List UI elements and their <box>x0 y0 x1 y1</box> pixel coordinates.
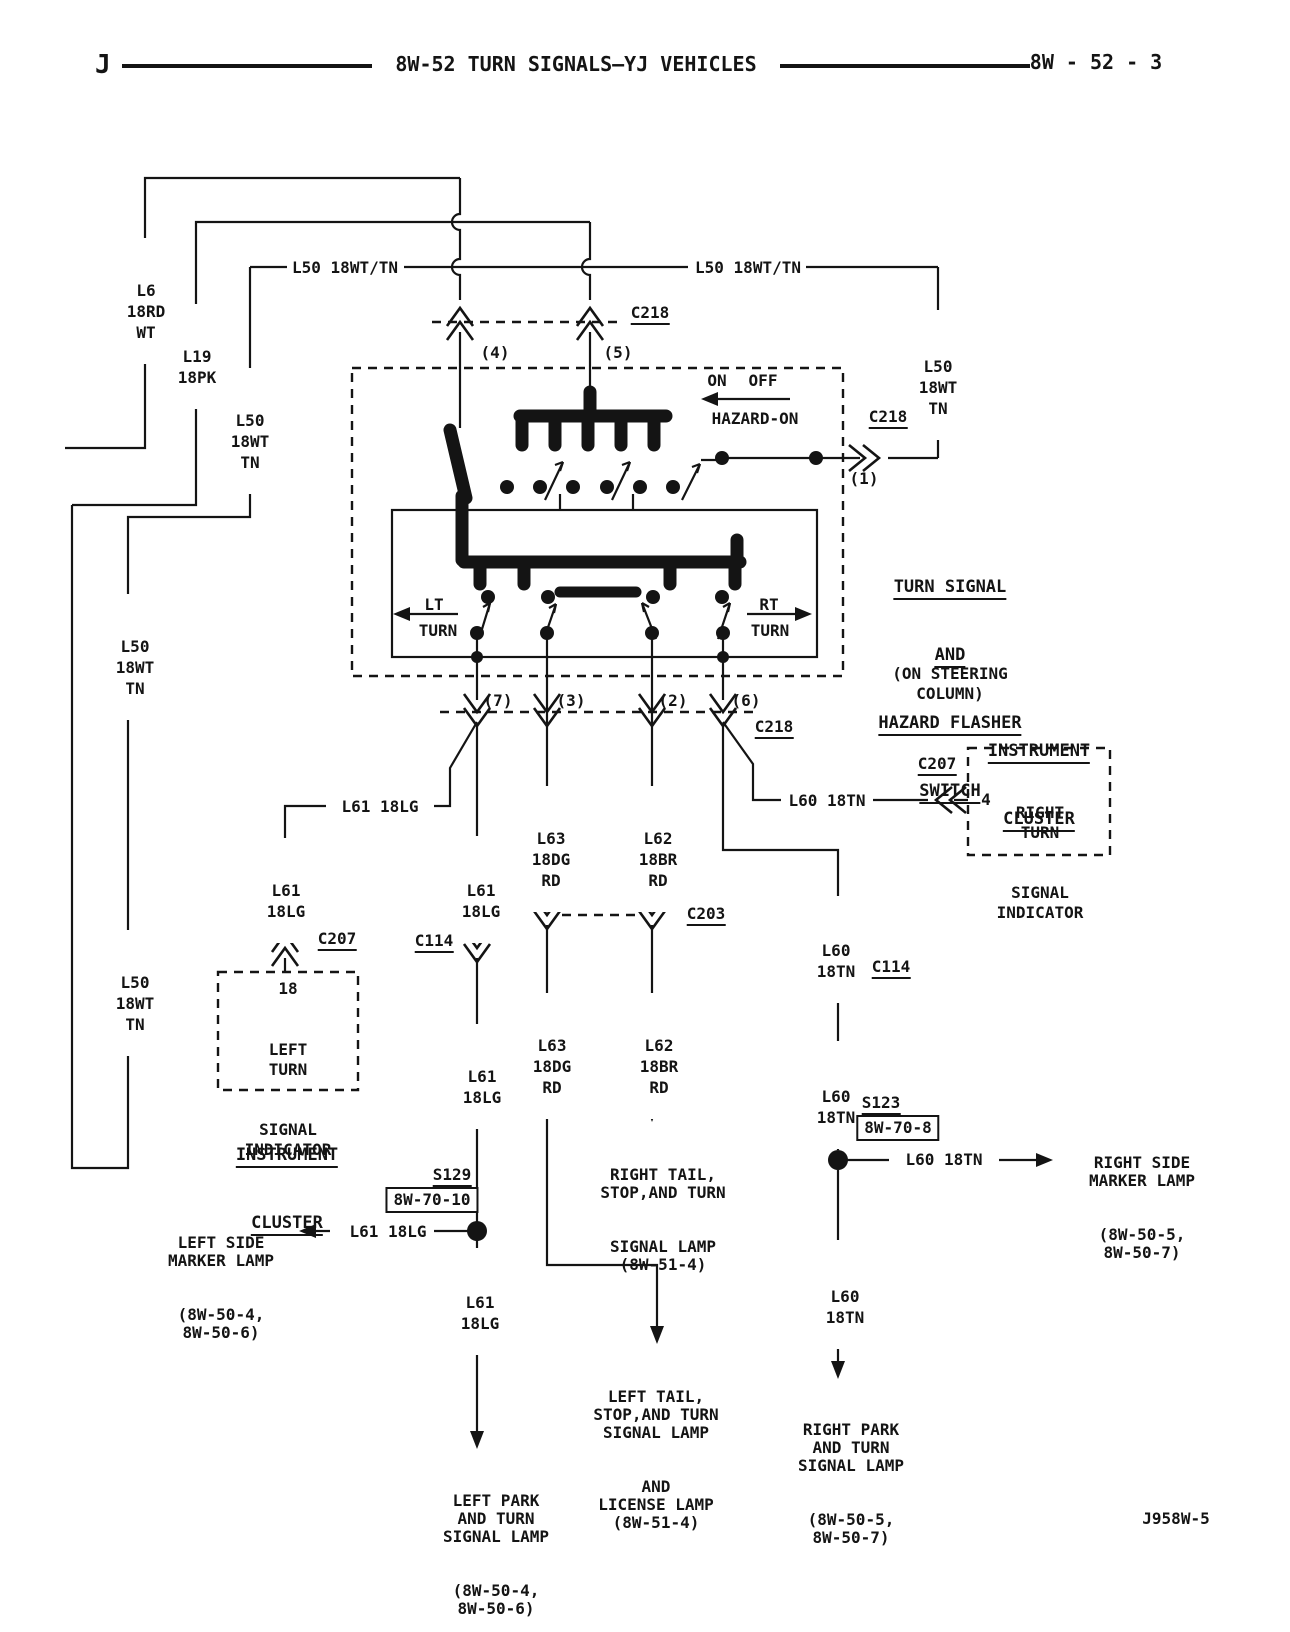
switch-stubs <box>560 494 633 510</box>
pin-6-label: (6) <box>730 690 763 711</box>
wire-label-l60-spur: L60 18TN <box>903 1149 984 1170</box>
right-turn-indicator: RIGHTTURN SIGNALINDICATOR <box>995 763 1086 943</box>
wire-label-l19: L1918PK <box>176 304 219 409</box>
left-side-marker-lamp-label: LEFT SIDEMARKER LAMP (8W-50-4,8W-50-6) <box>166 1198 276 1360</box>
switch-contact-arrows-lower <box>479 603 730 639</box>
wire-label-l60-branch: L60 18TN <box>786 790 867 811</box>
switch-rt-turn-label: TURN <box>749 620 792 641</box>
switch-rt-label: RT <box>757 594 780 615</box>
wire-label-l61-above-c114: L6118LG <box>460 838 503 943</box>
wire-label-l63-upper: L6318DGRD <box>530 786 573 912</box>
switch-busbars <box>450 392 740 592</box>
wire-hazard-feed-path <box>701 267 938 460</box>
wire-label-l50-feed-left: L50 18WT/TN <box>290 257 400 278</box>
wire-label-l50-mid-lower: L5018WTTN <box>114 930 157 1056</box>
wire-label-l50-left: L5018WTTN <box>229 368 272 494</box>
page-letter: J <box>95 50 111 80</box>
splice-s123-ref: 8W-70-8 <box>856 1115 939 1141</box>
feed-bar <box>450 430 466 560</box>
splice-s129-dot <box>467 1221 487 1241</box>
wire-label-l6: L618RDWT <box>125 238 168 364</box>
wire-label-l61-branch: L61 18LG <box>339 796 420 817</box>
page-ref: 8W - 52 - 3 <box>1028 52 1164 73</box>
connector-c218-right: C218 <box>867 406 910 429</box>
figure-id: J958W-5 <box>1140 1508 1211 1529</box>
splice-s123-label: S123 <box>860 1092 903 1115</box>
wire-label-l50-feed-right: L50 18WT/TN <box>693 257 803 278</box>
wire-pin4-path <box>452 178 460 428</box>
pin-5-label: (5) <box>602 342 635 363</box>
wire-label-l60-below-c114: L6018TN <box>815 1044 858 1149</box>
switch-lt-turn-label: TURN <box>417 620 460 641</box>
connector-c114-left: C114 <box>413 930 456 953</box>
splice-s129-ref: 8W-70-10 <box>385 1187 478 1213</box>
pin-4-label: (4) <box>479 342 512 363</box>
wire-label-l61-below-c114: L6118LG <box>461 1024 504 1129</box>
connector-c203: C203 <box>685 903 728 926</box>
connector-c207-left: C207 <box>316 928 359 951</box>
wire-label-l60-above-c114: L6018TN <box>815 898 858 1003</box>
pin-2-label: (2) <box>657 690 690 711</box>
right-tail-lamp-label: RIGHT TAIL,STOP,AND TURN SIGNAL LAMP(8W-… <box>598 1130 727 1292</box>
right-side-marker-lamp-label: RIGHT SIDEMARKER LAMP (8W-50-5,8W-50-7) <box>1087 1118 1197 1280</box>
wiring-diagram-page: J 8W-52 TURN SIGNALS—YJ VEHICLES 8W - 52… <box>0 0 1290 1632</box>
left-tail-lamp-label: LEFT TAIL,STOP,AND TURNSIGNAL LAMP ANDLI… <box>591 1352 720 1550</box>
wire-label-l61-spur: L61 18LG <box>347 1221 428 1242</box>
pin-1-label: (1) <box>848 468 881 489</box>
switch-lt-label: LT <box>422 594 445 615</box>
connector-c218-bottom: C218 <box>753 716 796 739</box>
splice-s123-dot <box>828 1150 848 1170</box>
splice-s129-label: S129 <box>431 1164 474 1187</box>
switch-on-label: ON <box>705 370 728 391</box>
wire-label-l61-to-cluster: L6118LG <box>265 838 308 943</box>
c207-left-pin: 18 <box>276 978 299 999</box>
wire-label-l63-lower: L6318DGRD <box>531 993 574 1119</box>
left-park-lamp-label: LEFT PARKAND TURNSIGNAL LAMP (8W-50-4,8W… <box>441 1456 551 1632</box>
switch-off-label: OFF <box>747 370 780 391</box>
wire-label-l61-bottom: L6118LG <box>459 1250 502 1355</box>
connector-c114-right: C114 <box>870 956 913 979</box>
wire-label-l50-mid-upper: L5018WTTN <box>114 594 157 720</box>
hazard-bus <box>520 392 666 445</box>
turn-bus <box>464 540 740 584</box>
wire-label-l60-bottom: L6018TN <box>824 1244 867 1349</box>
pin-7-label: (7) <box>482 690 515 711</box>
wire-l50-left-path <box>72 267 250 1168</box>
wire-pin5-path <box>582 222 590 390</box>
connector-c207-right: C207 <box>916 753 959 776</box>
page-title: 8W-52 TURN SIGNALS—YJ VEHICLES <box>393 54 758 75</box>
connector-c218-top: C218 <box>629 302 672 325</box>
pin-3-label: (3) <box>555 690 588 711</box>
wire-label-l62-lower: L6218BRRD <box>638 993 681 1119</box>
switch-contact-arrows-upper <box>545 462 700 500</box>
right-park-lamp-label: RIGHT PARKAND TURNSIGNAL LAMP (8W-50-5,8… <box>796 1385 906 1565</box>
wire-label-l62-upper: L6218BRRD <box>637 786 680 912</box>
wire-label-l50-right: L5018WTTN <box>917 314 960 440</box>
switch-hazard-label: HAZARD-ON <box>710 408 801 429</box>
